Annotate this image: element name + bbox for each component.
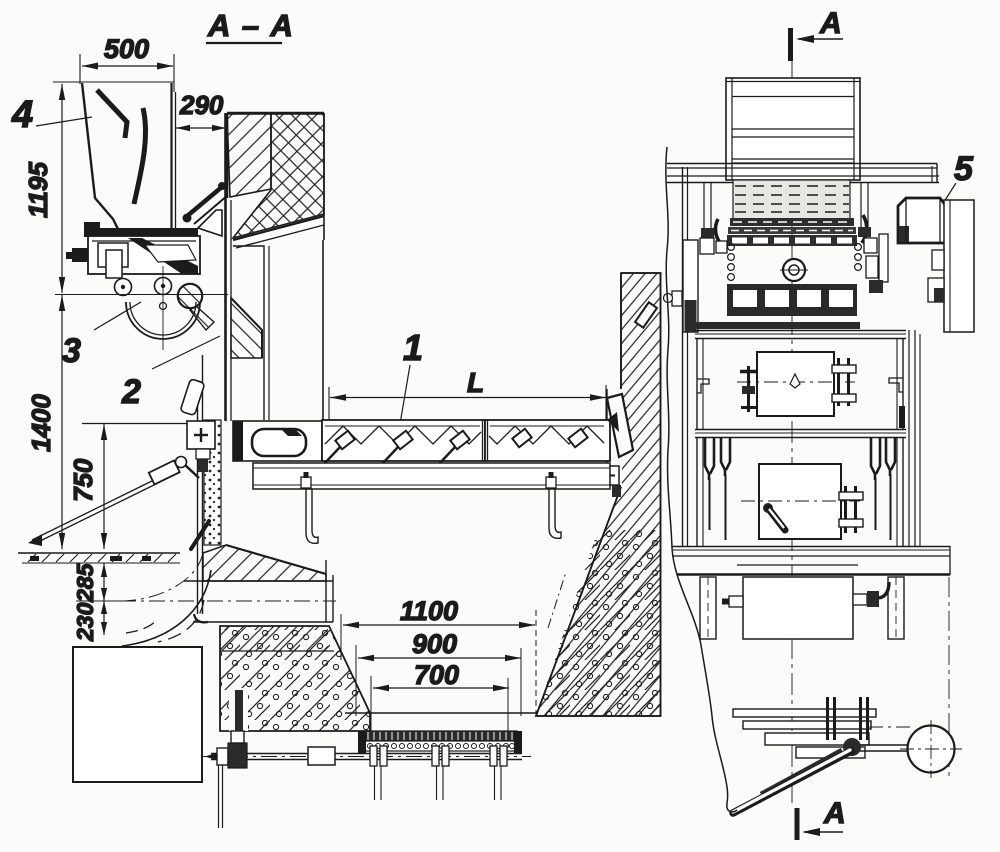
svg-text:1: 1 bbox=[403, 327, 423, 368]
svg-text:1400: 1400 bbox=[26, 394, 56, 452]
svg-text:285: 285 bbox=[72, 562, 98, 603]
svg-text:700: 700 bbox=[414, 660, 459, 690]
svg-text:A: A bbox=[819, 7, 842, 40]
svg-text:900: 900 bbox=[412, 629, 457, 659]
svg-text:5: 5 bbox=[954, 150, 974, 188]
svg-text:290: 290 bbox=[179, 90, 224, 120]
svg-text:L: L bbox=[467, 367, 484, 398]
svg-text:750: 750 bbox=[68, 458, 98, 502]
svg-text:2: 2 bbox=[121, 373, 141, 411]
svg-text:1195: 1195 bbox=[23, 162, 53, 218]
svg-text:230: 230 bbox=[72, 602, 98, 642]
svg-text:1100: 1100 bbox=[400, 596, 458, 626]
svg-text:500: 500 bbox=[104, 34, 149, 64]
svg-text:3: 3 bbox=[62, 332, 81, 370]
svg-text:A: A bbox=[823, 797, 846, 830]
svg-text:4: 4 bbox=[11, 94, 33, 136]
svg-text:A – A: A – A bbox=[207, 8, 295, 43]
